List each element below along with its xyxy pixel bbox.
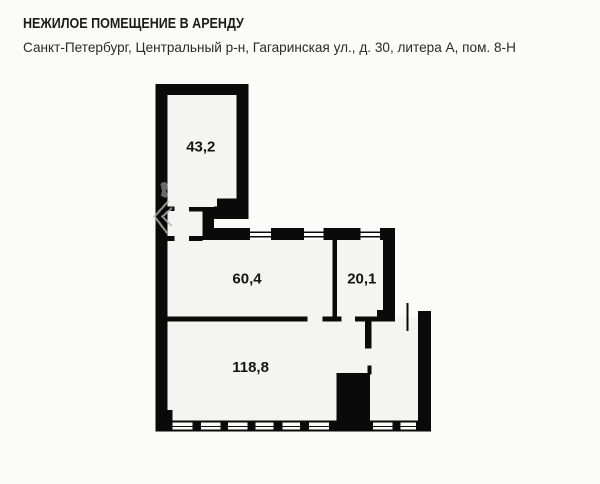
svg-text:20,1: 20,1	[347, 270, 376, 287]
svg-text:43,2: 43,2	[186, 138, 215, 155]
svg-text:60,4: 60,4	[232, 271, 262, 288]
svg-text:118,8: 118,8	[232, 359, 269, 376]
